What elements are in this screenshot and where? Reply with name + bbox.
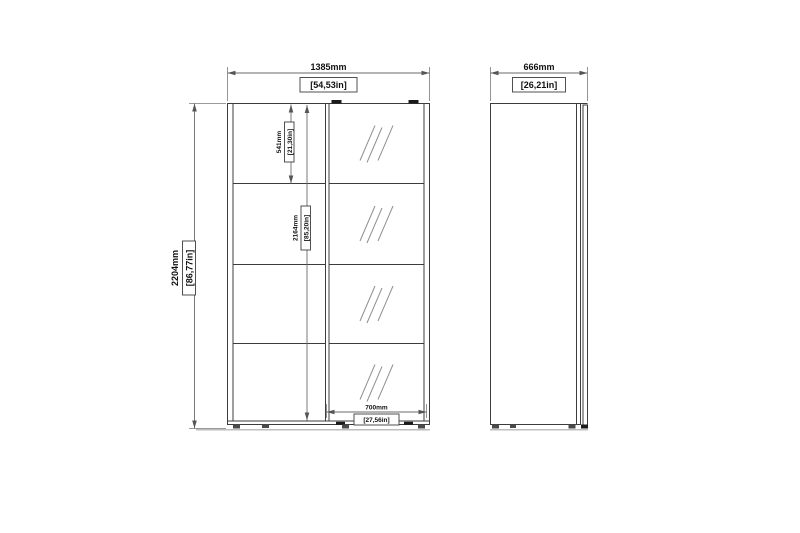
mirror-glass-hatch-3: [360, 286, 393, 323]
dimension-front-height: 2204mm [86,77in]: [170, 104, 226, 429]
side-view-feet: [490, 425, 588, 430]
side-view: 666mm [26,21in]: [490, 62, 588, 430]
mirror-door-width-inch-label: [27,56in]: [363, 417, 389, 424]
top-section-mm-label: 541mm: [276, 131, 283, 154]
left-door-panel: [233, 184, 326, 344]
dimension-top-section: 541mm [21,30in]: [276, 105, 294, 184]
door-roller-left: [336, 422, 345, 425]
front-height-inch-label: [86,77in]: [185, 250, 195, 287]
side-depth-mm-label: 666mm: [523, 62, 554, 72]
mirror-glass-hatch-1: [360, 126, 393, 163]
dimension-front-width: 1385mm [54,53in]: [228, 62, 430, 101]
door-hanger-left: [332, 100, 342, 104]
side-depth-inch-label: [26,21in]: [521, 80, 558, 90]
side-door-roller: [581, 425, 588, 429]
mirror-door-frame: [326, 104, 425, 422]
front-width-inch-label: [54,53in]: [310, 80, 347, 90]
mirror-door-panel: [326, 100, 425, 425]
front-height-label-group: 2204mm [86,77in]: [170, 241, 196, 295]
top-section-inch-label: [21,30in]: [287, 129, 294, 155]
dimension-interior-height: 2164mm [85,20in]: [293, 105, 311, 421]
top-section-label-group: 541mm [21,30in]: [276, 122, 294, 162]
interior-height-label-group: 2164mm [85,20in]: [293, 206, 311, 250]
front-height-mm-label: 2204mm: [170, 250, 180, 286]
door-roller-right: [404, 422, 413, 425]
door-hanger-right: [409, 100, 419, 104]
mirror-glass-hatch-2: [360, 206, 393, 243]
side-sliding-door: [581, 105, 588, 429]
mirror-glass-hatch-4: [360, 365, 393, 402]
side-cabinet-outline: [491, 104, 588, 425]
interior-height-mm-label: 2164mm: [293, 215, 300, 241]
interior-height-inch-label: [85,20in]: [304, 215, 311, 241]
front-view: 1385mm [54,53in] 2204mm [86,77in] 541mm: [170, 62, 430, 430]
dimension-side-depth: 666mm [26,21in]: [491, 62, 588, 101]
wardrobe-dimension-diagram: 1385mm [54,53in] 2204mm [86,77in] 541mm: [0, 0, 800, 533]
mirror-door-width-mm-label: 700mm: [365, 405, 388, 412]
front-width-mm-label: 1385mm: [310, 62, 346, 72]
technical-drawing-canvas: 1385mm [54,53in] 2204mm [86,77in] 541mm: [0, 0, 800, 533]
